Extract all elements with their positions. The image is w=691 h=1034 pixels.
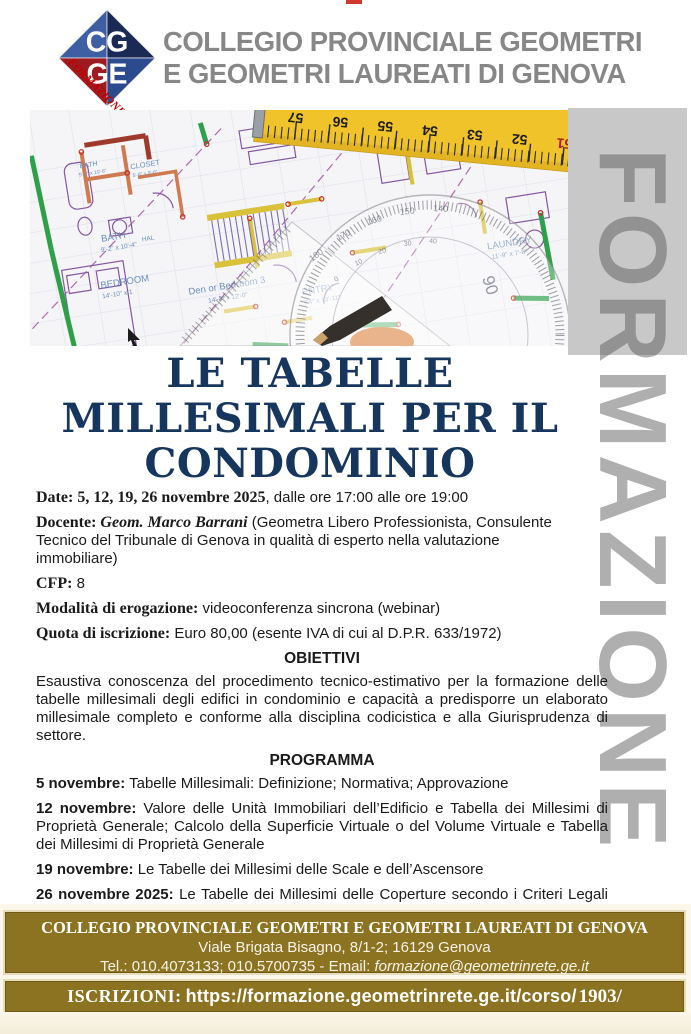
programma-item-3-date: 19 novembre: [36,861,134,878]
logo-letters-top: CG [86,26,129,58]
modalita-value: videoconferenza sincrona (webinar) [198,600,440,617]
course-title-line2: MILLESIMALI PER IL [30,396,590,441]
programma-item-1-text: Tabelle Millesimali: Definizione; Normat… [125,775,508,792]
obiettivi-text: Esaustiva conoscenza del procedimento te… [36,673,608,745]
svg-text:30: 30 [403,240,412,248]
organization-title-line2: E GEOMETRI LAUREATI DI GENOVA [163,58,683,90]
svg-text:57: 57 [287,110,304,127]
programma-item-2: 12 novembre: Valore delle Unità Immobili… [36,800,608,854]
svg-text:52: 52 [511,131,528,148]
footer-tel-numbers: Tel.: 010.4073133; 010.5700735 - Email: [100,958,374,975]
course-title-line3: CONDOMINIO [30,441,590,486]
date-value-bold: 5, 12, 19, 26 novembre 2025 [73,489,265,506]
docente-name: Geom. Marco Barrani [96,514,247,531]
cfp-label: CFP: [36,575,72,592]
svg-text:55: 55 [376,118,393,135]
course-details: Date: 5, 12, 19, 26 novembre 2025, dalle… [36,489,608,929]
footer-contact-box: COLLEGIO PROVINCIALE GEOMETRI E GEOMETRI… [5,912,684,973]
bottom-strip [0,1012,691,1034]
svg-text:140: 140 [433,203,449,214]
programma-item-1-date: 5 novembre: [36,775,125,792]
svg-text:54: 54 [421,122,438,139]
modalita-label: Modalità di erogazione: [36,600,198,617]
organization-title-line1: COLLEGIO PROVINCIALE GEOMETRI [163,26,683,58]
svg-text:150: 150 [399,205,415,217]
iscrizioni-bar: ISCRIZIONI: https://formazione.geometrin… [5,981,684,1012]
quota-value: Euro 80,00 (esente IVA di cui al D.P.R. … [170,625,501,642]
floorplan-photo: BATH 5'-2" x 10'-6" CLOSET 5'-8" x 9'-6"… [30,110,578,346]
cfp-value: 8 [72,575,85,592]
iscrizioni-course-code[interactable]: 1903/ [579,986,622,1008]
cgge-logo: CG GE FORMAZIONE [55,6,159,110]
obiettivi-heading: OBIETTIVI [36,650,608,668]
programma-item-3-text: Le Tabelle dei Millesimi delle Scale e d… [134,861,484,878]
svg-text:53: 53 [466,127,483,144]
flyer-page: CG GE FORMAZIONE COLLEGIO PROVINCIALE GE… [0,0,691,1034]
footer-address: Viale Brigata Bisagno, 8/1-2; 16129 Geno… [6,938,683,957]
print-mark [346,0,362,4]
detail-cfp: CFP: 8 [36,575,608,593]
course-title: LE TABELLE MILLESIMALI PER IL CONDOMINIO [30,351,590,486]
programma-item-4-date: 26 novembre 2025: [36,886,174,903]
detail-docente: Docente: Geom. Marco Barrani (Geometra L… [36,514,584,568]
programma-item-1: 5 novembre: Tabelle Millesimali: Definiz… [36,775,608,793]
svg-text:40: 40 [429,238,437,245]
iscrizioni-url-link[interactable]: https://formazione.geometrinrete.ge.it/c… [186,986,577,1007]
svg-text:56: 56 [332,114,349,131]
programma-heading: PROGRAMMA [36,752,608,770]
iscrizioni-label: ISCRIZIONI: [67,986,182,1007]
quota-label: Quota di iscrizione: [36,625,170,642]
detail-quota: Quota di iscrizione: Euro 80,00 (esente … [36,625,608,643]
footer-email-link[interactable]: formazione@geometrinrete.ge.it [374,958,589,975]
programma-item-2-date: 12 novembre: [36,800,136,817]
footer-telephone: Tel.: 010.4073133; 010.5700735 - Email: … [6,957,683,976]
date-label: Date: [36,489,73,506]
detail-date: Date: 5, 12, 19, 26 novembre 2025, dalle… [36,489,608,507]
date-value-rest: , dalle ore 17:00 alle ore 19:00 [265,489,468,506]
docente-label: Docente: [36,514,96,531]
programma-item-3: 19 novembre: Le Tabelle dei Millesimi de… [36,861,608,879]
footer-organization: COLLEGIO PROVINCIALE GEOMETRI E GEOMETRI… [6,918,683,938]
course-title-line1: LE TABELLE [30,351,590,396]
detail-modalita: Modalità di erogazione: videoconferenza … [36,600,608,618]
organization-title: COLLEGIO PROVINCIALE GEOMETRI E GEOMETRI… [163,26,683,90]
